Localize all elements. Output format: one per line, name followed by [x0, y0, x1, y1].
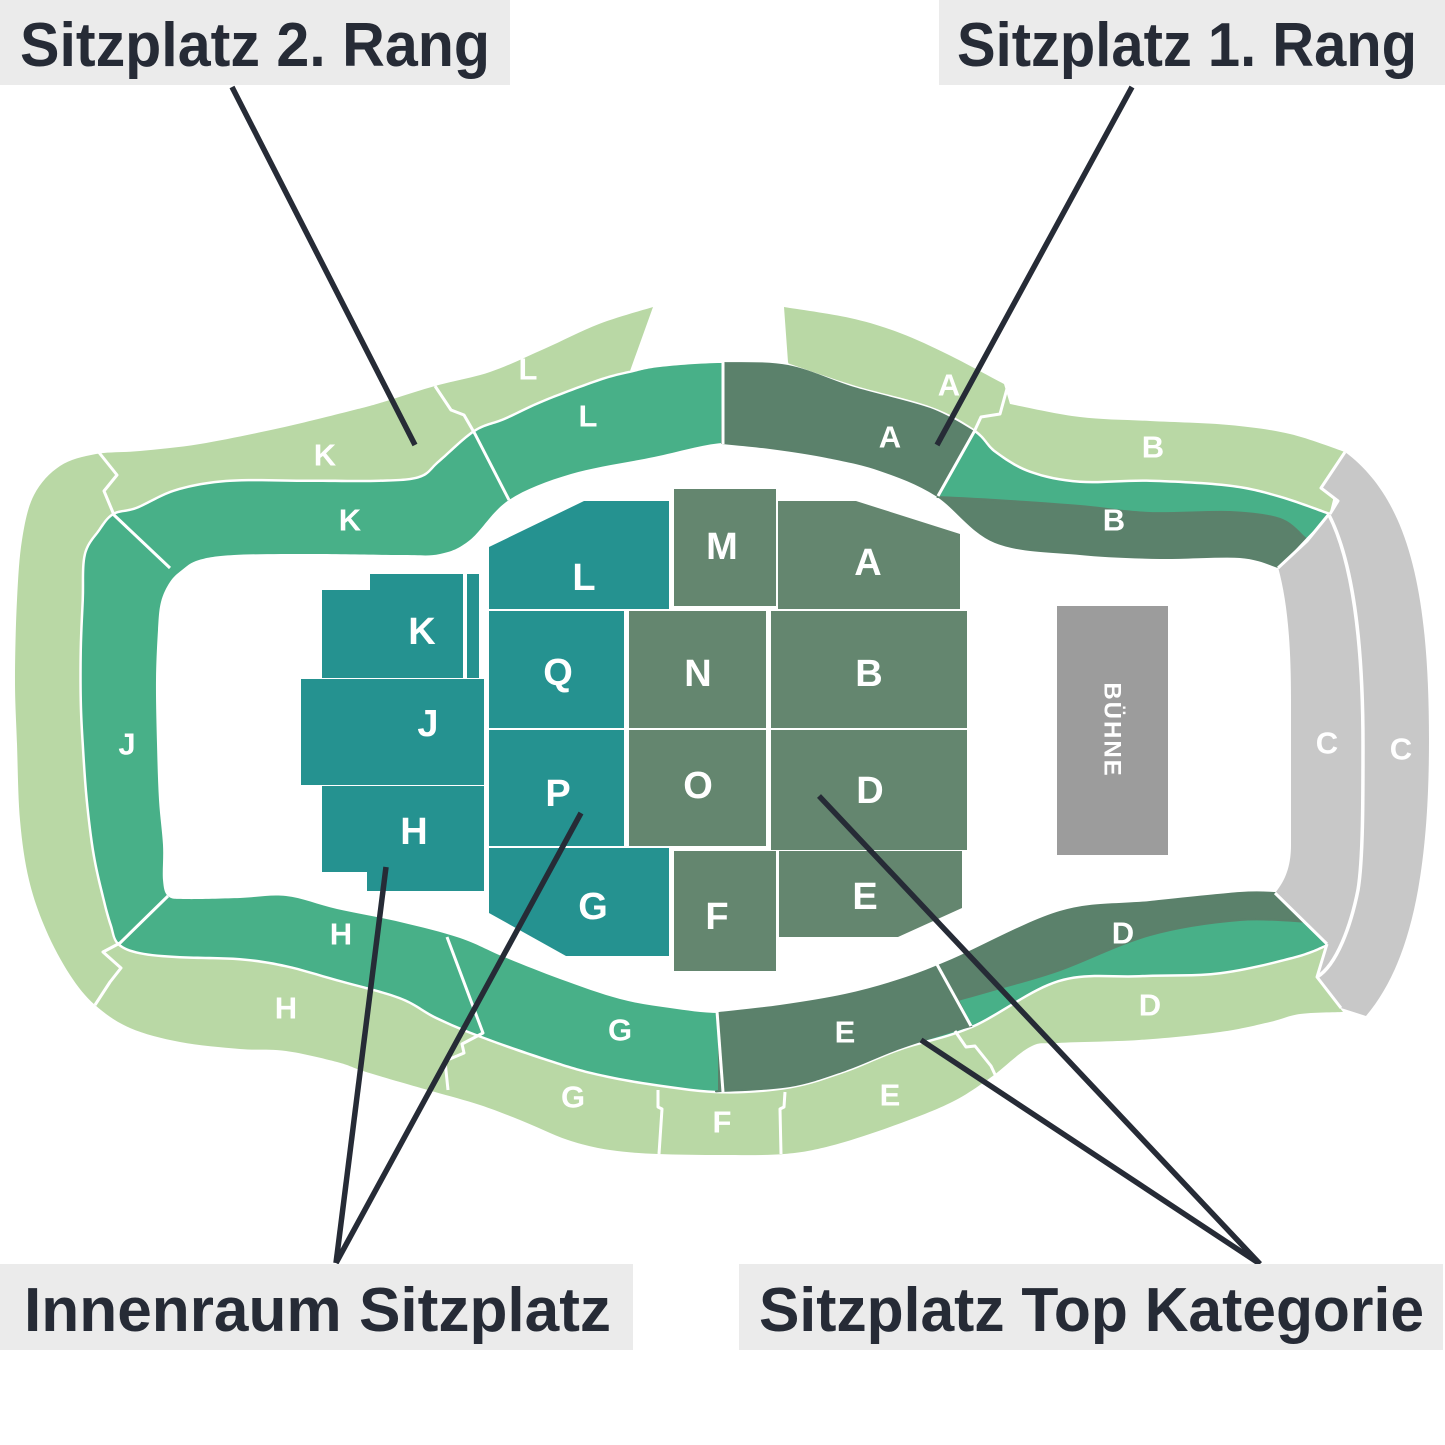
svg-text:K: K [314, 438, 337, 473]
svg-text:G: G [608, 1013, 632, 1048]
svg-text:H: H [275, 991, 297, 1026]
svg-text:B: B [1142, 430, 1164, 465]
svg-text:E: E [852, 876, 877, 918]
svg-text:L: L [519, 352, 538, 387]
svg-text:Innenraum Sitzplatz: Innenraum Sitzplatz [24, 1276, 611, 1345]
svg-text:K: K [408, 611, 436, 653]
svg-text:N: N [684, 653, 711, 695]
svg-text:J: J [118, 727, 135, 762]
svg-text:F: F [705, 896, 728, 938]
svg-text:G: G [561, 1080, 585, 1115]
svg-text:C: C [1316, 726, 1338, 761]
svg-text:F: F [713, 1105, 732, 1140]
svg-text:H: H [400, 811, 427, 853]
svg-text:E: E [835, 1015, 856, 1050]
svg-text:D: D [856, 770, 883, 812]
svg-text:D: D [1139, 988, 1161, 1023]
svg-text:D: D [1112, 916, 1134, 951]
svg-text:Sitzplatz Top Kategorie: Sitzplatz Top Kategorie [759, 1276, 1424, 1345]
svg-text:E: E [880, 1078, 901, 1113]
svg-text:K: K [339, 503, 362, 538]
svg-text:O: O [683, 765, 713, 807]
svg-text:L: L [579, 399, 598, 434]
svg-text:Sitzplatz 2. Rang: Sitzplatz 2. Rang [20, 11, 490, 80]
svg-text:J: J [417, 703, 438, 745]
svg-text:M: M [706, 526, 738, 568]
svg-text:B: B [1103, 503, 1125, 538]
svg-text:Sitzplatz 1. Rang: Sitzplatz 1. Rang [957, 11, 1417, 80]
svg-text:P: P [545, 773, 570, 815]
svg-text:A: A [938, 368, 960, 403]
svg-text:A: A [879, 420, 901, 455]
svg-text:B: B [855, 653, 882, 695]
svg-text:H: H [330, 917, 352, 952]
svg-text:C: C [1390, 732, 1412, 767]
svg-text:Q: Q [543, 652, 573, 694]
svg-text:A: A [854, 542, 881, 584]
svg-text:G: G [578, 886, 608, 928]
svg-text:BÜHNE: BÜHNE [1099, 682, 1126, 777]
svg-text:L: L [572, 557, 595, 599]
